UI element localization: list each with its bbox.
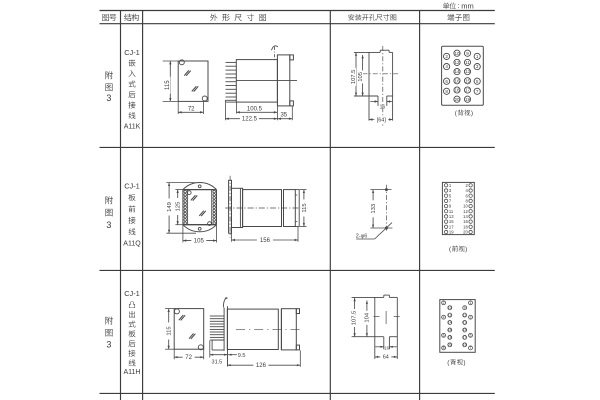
svg-text:64: 64: [383, 355, 389, 361]
svg-text:107.5: 107.5: [351, 70, 357, 85]
svg-text::: :: [458, 3, 460, 10]
svg-text:104: 104: [364, 312, 370, 322]
svg-text:18: 18: [448, 336, 452, 340]
svg-text:11: 11: [463, 313, 467, 317]
svg-text:1: 1: [476, 54, 479, 59]
svg-text:20: 20: [463, 230, 468, 235]
svg-text:17: 17: [465, 88, 471, 93]
svg-text:mm: mm: [461, 1, 474, 10]
svg-text:4: 4: [445, 64, 448, 69]
svg-text:9.5: 9.5: [238, 353, 246, 359]
svg-text:14: 14: [448, 321, 452, 325]
svg-text:): ): [463, 359, 465, 366]
svg-text:5: 5: [476, 79, 479, 84]
svg-text:9: 9: [464, 306, 466, 310]
svg-text:72: 72: [185, 355, 192, 361]
svg-text:[64]: [64]: [377, 118, 387, 124]
svg-text:115: 115: [302, 203, 308, 212]
svg-text:8: 8: [445, 89, 448, 94]
svg-text:A11Q: A11Q: [123, 241, 141, 248]
svg-text:133: 133: [371, 204, 377, 214]
svg-text:17: 17: [463, 336, 467, 340]
svg-text:12: 12: [454, 60, 460, 65]
svg-text:15: 15: [465, 78, 471, 83]
svg-text:105: 105: [358, 72, 364, 82]
svg-text:35: 35: [280, 113, 287, 119]
svg-text:3: 3: [106, 93, 111, 103]
svg-text:11: 11: [465, 60, 470, 65]
svg-text:6: 6: [445, 79, 448, 84]
svg-text:16: 16: [380, 105, 386, 111]
svg-text:156: 156: [260, 238, 271, 244]
svg-text:8: 8: [443, 346, 445, 350]
svg-text:105: 105: [194, 238, 205, 244]
svg-text:31.5: 31.5: [212, 359, 223, 365]
svg-text:12: 12: [448, 313, 452, 317]
svg-text:7: 7: [476, 89, 479, 94]
svg-text:A11K: A11K: [124, 124, 141, 131]
svg-text:13: 13: [463, 321, 467, 325]
svg-text:19: 19: [463, 343, 467, 347]
svg-text:9: 9: [466, 51, 469, 56]
svg-text:3: 3: [470, 315, 472, 319]
svg-text:A11H: A11H: [124, 369, 141, 376]
svg-text:1: 1: [470, 301, 472, 305]
svg-text:13: 13: [465, 69, 471, 74]
svg-text:16: 16: [384, 345, 389, 350]
svg-text:4: 4: [443, 315, 445, 319]
svg-text:CJ-1: CJ-1: [124, 48, 140, 57]
svg-text:3: 3: [106, 340, 111, 350]
svg-text:CJ-1: CJ-1: [124, 182, 140, 191]
svg-text:14: 14: [454, 69, 460, 74]
svg-text:CJ-1: CJ-1: [124, 289, 140, 298]
svg-text:115: 115: [166, 326, 172, 335]
svg-text:15: 15: [463, 328, 467, 332]
svg-text:16: 16: [448, 328, 452, 332]
svg-text:3: 3: [476, 64, 479, 69]
svg-text:149: 149: [167, 202, 173, 212]
svg-text:10: 10: [448, 306, 452, 310]
svg-text:10: 10: [454, 51, 460, 56]
svg-text:126: 126: [256, 363, 267, 369]
svg-text:125: 125: [176, 202, 182, 212]
svg-text:7: 7: [470, 346, 472, 350]
svg-text:18: 18: [454, 88, 460, 93]
svg-text:16: 16: [454, 78, 460, 83]
svg-text:122.5: 122.5: [242, 117, 258, 123]
svg-text:19: 19: [449, 230, 454, 235]
svg-text:107.5: 107.5: [352, 311, 358, 326]
svg-text:115: 115: [165, 80, 171, 90]
svg-text:19: 19: [465, 97, 471, 102]
svg-text:5: 5: [470, 334, 472, 338]
svg-text:2-φ6: 2-φ6: [356, 234, 368, 240]
svg-text:3: 3: [106, 220, 111, 230]
svg-text:): ): [471, 110, 473, 117]
svg-text:20: 20: [448, 343, 452, 347]
svg-text:72: 72: [188, 107, 195, 113]
svg-text:20: 20: [454, 97, 460, 102]
svg-text:100.5: 100.5: [247, 106, 263, 112]
svg-text:2: 2: [445, 54, 448, 59]
svg-text:): ): [465, 246, 467, 253]
svg-text:6: 6: [443, 334, 445, 338]
svg-text:2: 2: [443, 301, 445, 305]
